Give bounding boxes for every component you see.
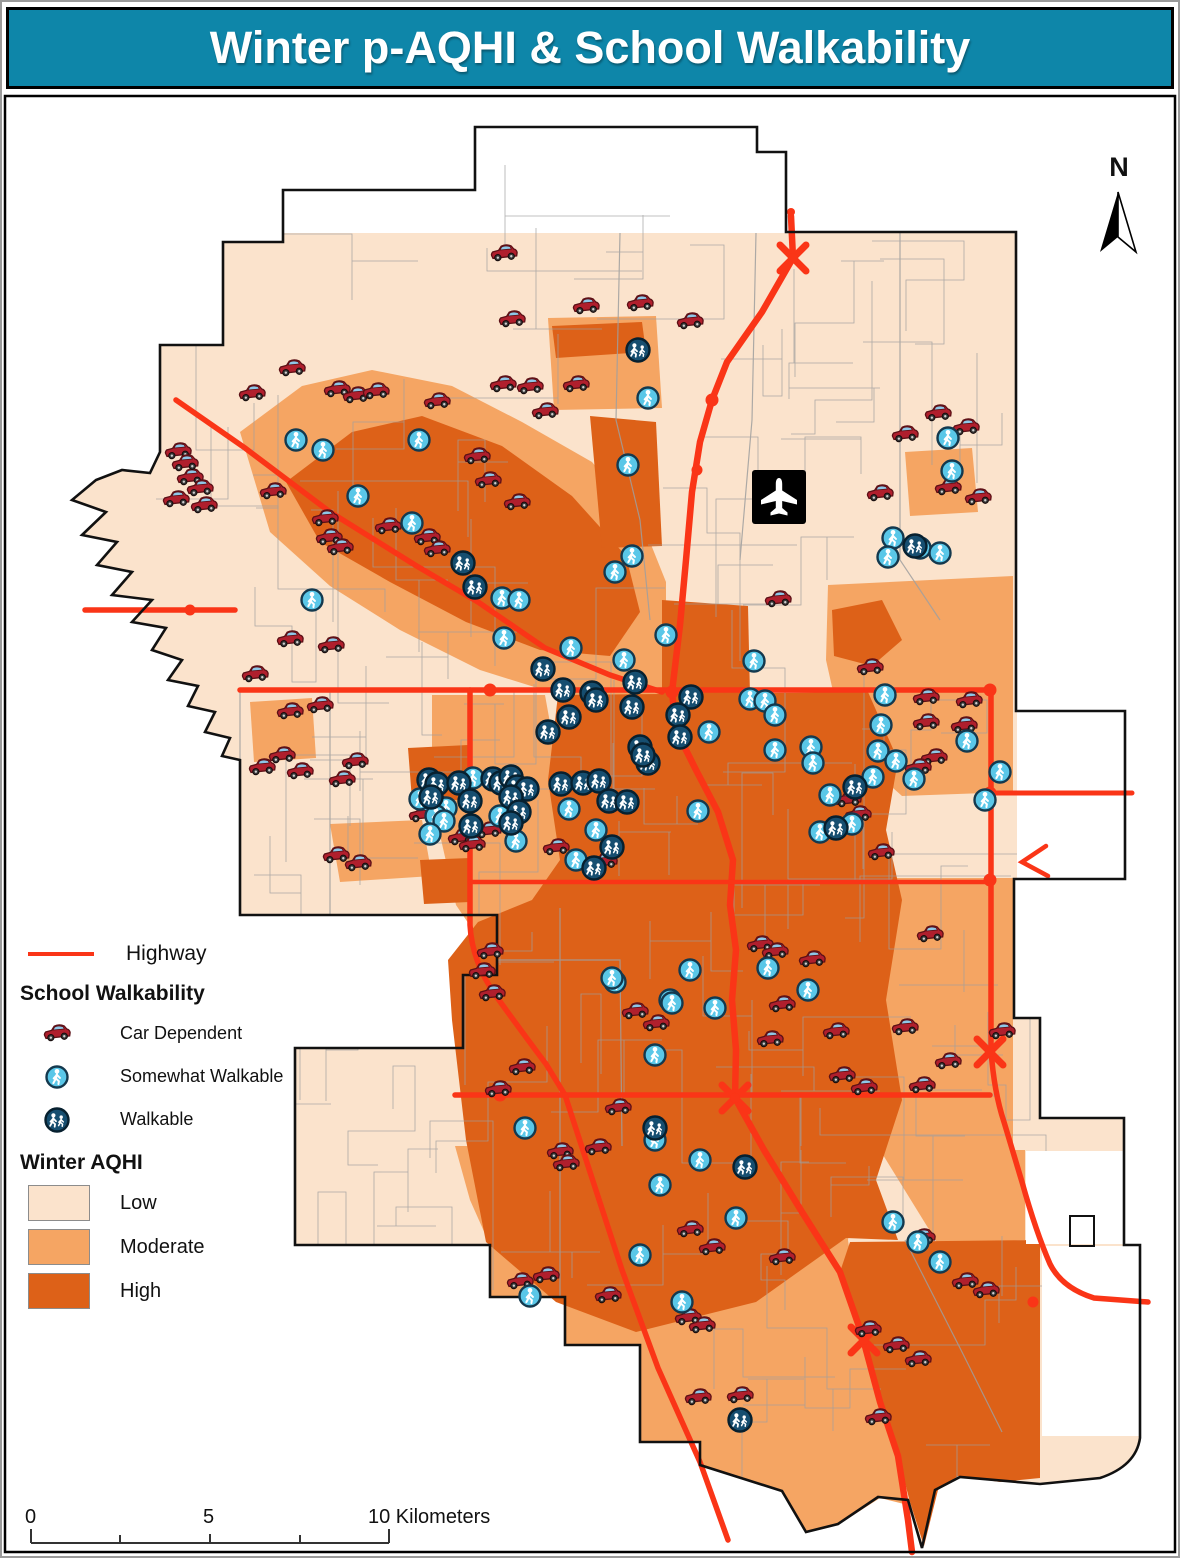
marker-somewhat-walkable	[509, 590, 530, 611]
aqhi-low-swatch	[28, 1185, 90, 1221]
marker-somewhat-walkable	[645, 1045, 666, 1066]
marker-somewhat-walkable	[803, 753, 824, 774]
marker-walkable	[420, 786, 443, 809]
marker-walkable	[459, 790, 482, 813]
marker-walkable	[627, 339, 650, 362]
marker-somewhat-walkable	[605, 562, 626, 583]
aqhi-moderate-label: Moderate	[120, 1236, 205, 1259]
marker-somewhat-walkable	[313, 440, 334, 461]
legend-aqhi-heading: Winter AQHI	[20, 1151, 320, 1175]
marker-walkable	[550, 773, 573, 796]
marker-somewhat-walkable	[286, 430, 307, 451]
aqhi-high-label: High	[120, 1280, 161, 1303]
marker-somewhat-walkable	[957, 731, 978, 752]
marker-somewhat-walkable	[942, 461, 963, 482]
marker-somewhat-walkable	[618, 455, 639, 476]
marker-somewhat-walkable	[348, 486, 369, 507]
marker-walkable	[621, 696, 644, 719]
marker-somewhat-walkable	[420, 824, 441, 845]
marker-somewhat-walkable	[622, 546, 643, 567]
legend-aqhi-moderate-row: Moderate	[20, 1225, 320, 1269]
marker-walkable	[624, 671, 647, 694]
marker-somewhat-walkable	[908, 1232, 929, 1253]
marker-somewhat-walkable	[515, 1118, 536, 1139]
marker-somewhat-walkable	[886, 751, 907, 772]
marker-somewhat-walkable	[820, 785, 841, 806]
legend-item-label: Somewhat Walkable	[120, 1066, 283, 1087]
marker-walkable	[632, 744, 655, 767]
legend-item-walkable: Walkable	[20, 1098, 320, 1141]
marker-walkable	[601, 836, 624, 859]
marker-somewhat-walkable	[765, 740, 786, 761]
car-icon	[34, 1021, 80, 1047]
walkable-icon	[34, 1105, 80, 1135]
marker-somewhat-walkable	[638, 388, 659, 409]
north-label: N	[1106, 152, 1132, 183]
marker-somewhat-walkable	[662, 993, 683, 1014]
legend-item-somewhat-walkable: Somewhat Walkable	[20, 1055, 320, 1098]
marker-somewhat-walkable	[883, 1212, 904, 1233]
marker-somewhat-walkable	[878, 547, 899, 568]
marker-walkable	[616, 791, 639, 814]
marker-somewhat-walkable	[938, 428, 959, 449]
marker-somewhat-walkable	[656, 625, 677, 646]
marker-somewhat-walkable	[559, 799, 580, 820]
marker-somewhat-walkable	[302, 590, 323, 611]
legend-item-label: Car Dependent	[120, 1023, 242, 1044]
marker-walkable	[585, 689, 608, 712]
marker-walkable	[558, 706, 581, 729]
aqhi-moderate-swatch	[28, 1229, 90, 1265]
scale-label-0: 0	[25, 1506, 36, 1529]
marker-somewhat-walkable	[494, 628, 515, 649]
legend-highway-label: Highway	[126, 942, 207, 966]
marker-somewhat-walkable	[930, 1252, 951, 1273]
marker-somewhat-walkable	[561, 638, 582, 659]
legend-item-label: Walkable	[120, 1109, 193, 1130]
marker-somewhat-walkable	[758, 958, 779, 979]
marker-somewhat-walkable	[705, 998, 726, 1019]
marker-somewhat-walkable	[688, 801, 709, 822]
marker-somewhat-walkable	[798, 980, 819, 1001]
page: Winter p-AQHI & School Walkability Highw…	[0, 0, 1180, 1558]
marker-somewhat-walkable	[883, 528, 904, 549]
legend-highway-row: Highway	[20, 936, 320, 972]
marker-walkable	[452, 552, 475, 575]
marker-somewhat-walkable	[402, 513, 423, 534]
marker-walkable	[667, 704, 690, 727]
marker-walkable	[904, 535, 927, 558]
marker-somewhat-walkable	[744, 651, 765, 672]
somewhat-walkable-icon	[34, 1063, 80, 1091]
marker-somewhat-walkable	[586, 820, 607, 841]
scale-label-10km: 10 Kilometers	[368, 1506, 490, 1529]
marker-somewhat-walkable	[875, 685, 896, 706]
marker-walkable	[729, 1409, 752, 1432]
marker-somewhat-walkable	[904, 769, 925, 790]
marker-somewhat-walkable	[602, 968, 623, 989]
marker-walkable	[734, 1156, 757, 1179]
marker-somewhat-walkable	[672, 1292, 693, 1313]
aqhi-low-label: Low	[120, 1192, 157, 1215]
scale-label-5: 5	[203, 1506, 214, 1529]
marker-somewhat-walkable	[690, 1150, 711, 1171]
marker-walkable	[669, 726, 692, 749]
marker-somewhat-walkable	[990, 762, 1011, 783]
legend-aqhi-high-row: High	[20, 1269, 320, 1313]
marker-walkable	[583, 857, 606, 880]
marker-somewhat-walkable	[930, 543, 951, 564]
legend: Highway School Walkability Car Dependent…	[20, 936, 320, 1313]
marker-somewhat-walkable	[680, 960, 701, 981]
marker-walkable	[644, 1117, 667, 1140]
legend-aqhi-low-row: Low	[20, 1181, 320, 1225]
marker-somewhat-walkable	[699, 722, 720, 743]
marker-walkable	[532, 658, 555, 681]
highway-line-sample	[28, 952, 94, 956]
page-title: Winter p-AQHI & School Walkability	[210, 22, 970, 74]
marker-walkable	[500, 812, 523, 835]
marker-somewhat-walkable	[726, 1208, 747, 1229]
marker-walkable	[464, 576, 487, 599]
marker-somewhat-walkable	[765, 705, 786, 726]
marker-somewhat-walkable	[520, 1286, 541, 1307]
marker-somewhat-walkable	[975, 790, 996, 811]
marker-somewhat-walkable	[409, 430, 430, 451]
marker-walkable	[825, 817, 848, 840]
aqhi-high-swatch	[28, 1273, 90, 1309]
map-canvas	[0, 0, 1180, 1558]
legend-school-walkability-heading: School Walkability	[20, 982, 320, 1006]
marker-somewhat-walkable	[650, 1175, 671, 1196]
marker-walkable	[537, 721, 560, 744]
marker-walkable	[844, 776, 867, 799]
marker-somewhat-walkable	[871, 715, 892, 736]
title-bar: Winter p-AQHI & School Walkability	[6, 7, 1174, 89]
airport-icon	[752, 470, 806, 524]
marker-walkable	[552, 679, 575, 702]
marker-somewhat-walkable	[630, 1245, 651, 1266]
marker-somewhat-walkable	[614, 650, 635, 671]
marker-walkable	[460, 815, 483, 838]
legend-item-car-dependent: Car Dependent	[20, 1012, 320, 1055]
